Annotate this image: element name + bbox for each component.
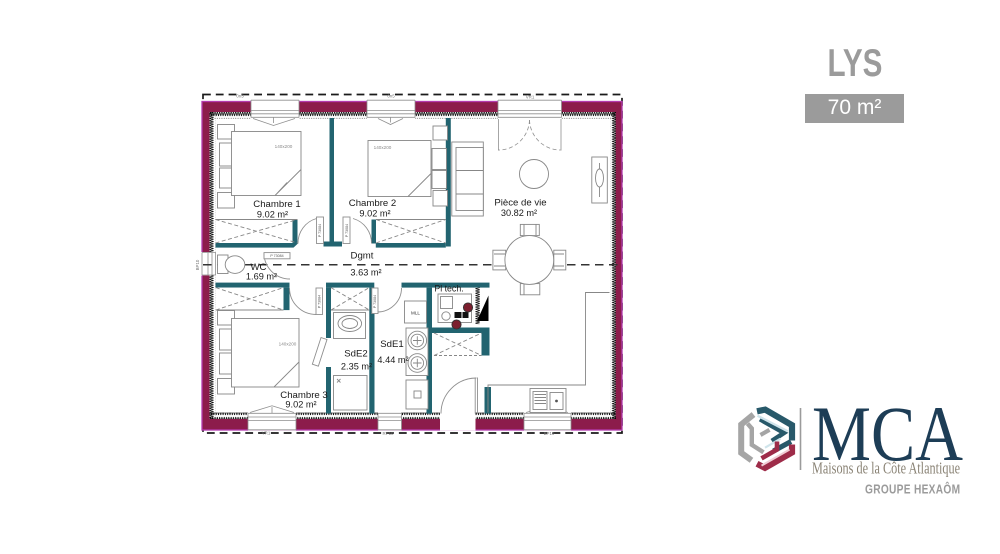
- svg-text:9.02 m²: 9.02 m²: [359, 209, 390, 219]
- svg-text:0n5: 0n5: [236, 94, 244, 99]
- svg-text:P 73084: P 73084: [318, 295, 322, 308]
- svg-text:4.44 m²: 4.44 m²: [377, 355, 408, 365]
- svg-text:3.63 m²: 3.63 m²: [350, 268, 381, 278]
- svg-text:0n5: 0n5: [387, 94, 395, 99]
- svg-text:Pièce de vie: Pièce de vie: [494, 198, 546, 209]
- svg-text:140x200: 140x200: [374, 145, 392, 150]
- svg-text:Dgmt: Dgmt: [351, 251, 374, 262]
- svg-text:2.35 m²: 2.35 m²: [341, 362, 372, 372]
- svg-text:140x200: 140x200: [279, 342, 297, 347]
- svg-text:Chambre 2: Chambre 2: [349, 198, 396, 209]
- svg-text:1.69 m²: 1.69 m²: [246, 272, 277, 282]
- svg-text:9.02 m²: 9.02 m²: [285, 400, 316, 410]
- svg-text:BP10: BP10: [544, 431, 555, 436]
- svg-text:Pl tech.: Pl tech.: [434, 284, 463, 294]
- svg-text:P 73084: P 73084: [318, 224, 322, 237]
- svg-text:P 73084: P 73084: [373, 295, 377, 308]
- svg-text:RP10: RP10: [383, 431, 395, 436]
- svg-text:MLL: MLL: [411, 311, 420, 316]
- svg-text:Chambre 1: Chambre 1: [253, 199, 300, 210]
- svg-text:140x200: 140x200: [275, 144, 293, 149]
- svg-text:P 73084: P 73084: [270, 254, 283, 258]
- svg-text:SdE2: SdE2: [344, 349, 367, 360]
- svg-text:BP10: BP10: [195, 259, 200, 270]
- svg-text:9.02 m²: 9.02 m²: [257, 210, 288, 220]
- svg-text:SdE1: SdE1: [380, 339, 403, 350]
- svg-text:30.82 m²: 30.82 m²: [501, 208, 537, 218]
- svg-text:P 73084: P 73084: [345, 224, 349, 237]
- svg-text:VR1: VR1: [526, 95, 535, 100]
- svg-text:VR1: VR1: [262, 431, 271, 436]
